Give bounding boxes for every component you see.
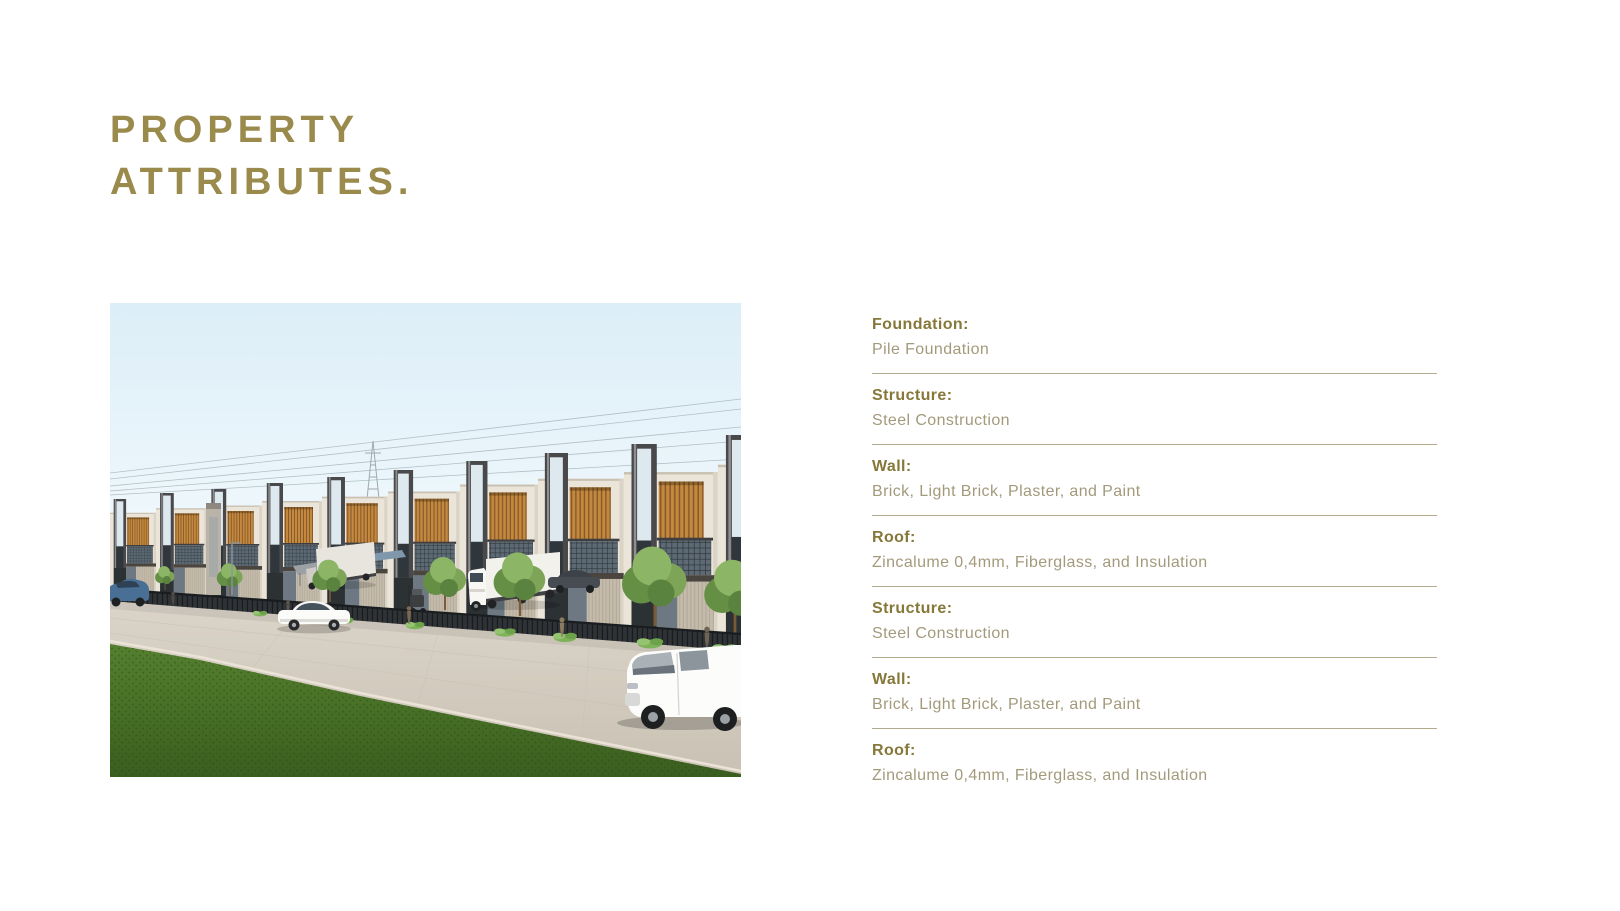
attribute-item: Roof: Zincalume 0,4mm, Fiberglass, and I…	[872, 729, 1437, 799]
attribute-label: Structure:	[872, 383, 1437, 408]
attribute-value: Zincalume 0,4mm, Fiberglass, and Insulat…	[872, 763, 1437, 789]
attribute-value: Brick, Light Brick, Plaster, and Paint	[872, 479, 1437, 505]
property-render-image: 5F G	[110, 303, 741, 777]
attribute-label: Roof:	[872, 525, 1437, 550]
attribute-item: Wall: Brick, Light Brick, Plaster, and P…	[872, 445, 1437, 516]
attribute-item: Structure: Steel Construction	[872, 374, 1437, 445]
attribute-value: Zincalume 0,4mm, Fiberglass, and Insulat…	[872, 550, 1437, 576]
attribute-label: Wall:	[872, 667, 1437, 692]
attribute-label: Structure:	[872, 596, 1437, 621]
attribute-value: Steel Construction	[872, 621, 1437, 647]
attribute-value: Brick, Light Brick, Plaster, and Paint	[872, 692, 1437, 718]
attribute-value: Pile Foundation	[872, 337, 1437, 363]
attribute-value: Steel Construction	[872, 408, 1437, 434]
page-title-line-2: ATTRIBUTES.	[110, 156, 413, 208]
attribute-item: Structure: Steel Construction	[872, 587, 1437, 658]
white-van	[617, 645, 741, 731]
attribute-item: Foundation: Pile Foundation	[872, 312, 1437, 374]
page-title-line-1: PROPERTY	[110, 104, 413, 156]
attribute-label: Foundation:	[872, 312, 1437, 337]
attribute-item: Wall: Brick, Light Brick, Plaster, and P…	[872, 658, 1437, 729]
attribute-item: Roof: Zincalume 0,4mm, Fiberglass, and I…	[872, 516, 1437, 587]
page-title: PROPERTY ATTRIBUTES.	[110, 104, 413, 208]
attribute-label: Wall:	[872, 454, 1437, 479]
attribute-label: Roof:	[872, 738, 1437, 763]
attributes-list: Foundation: Pile Foundation Structure: S…	[872, 312, 1437, 799]
